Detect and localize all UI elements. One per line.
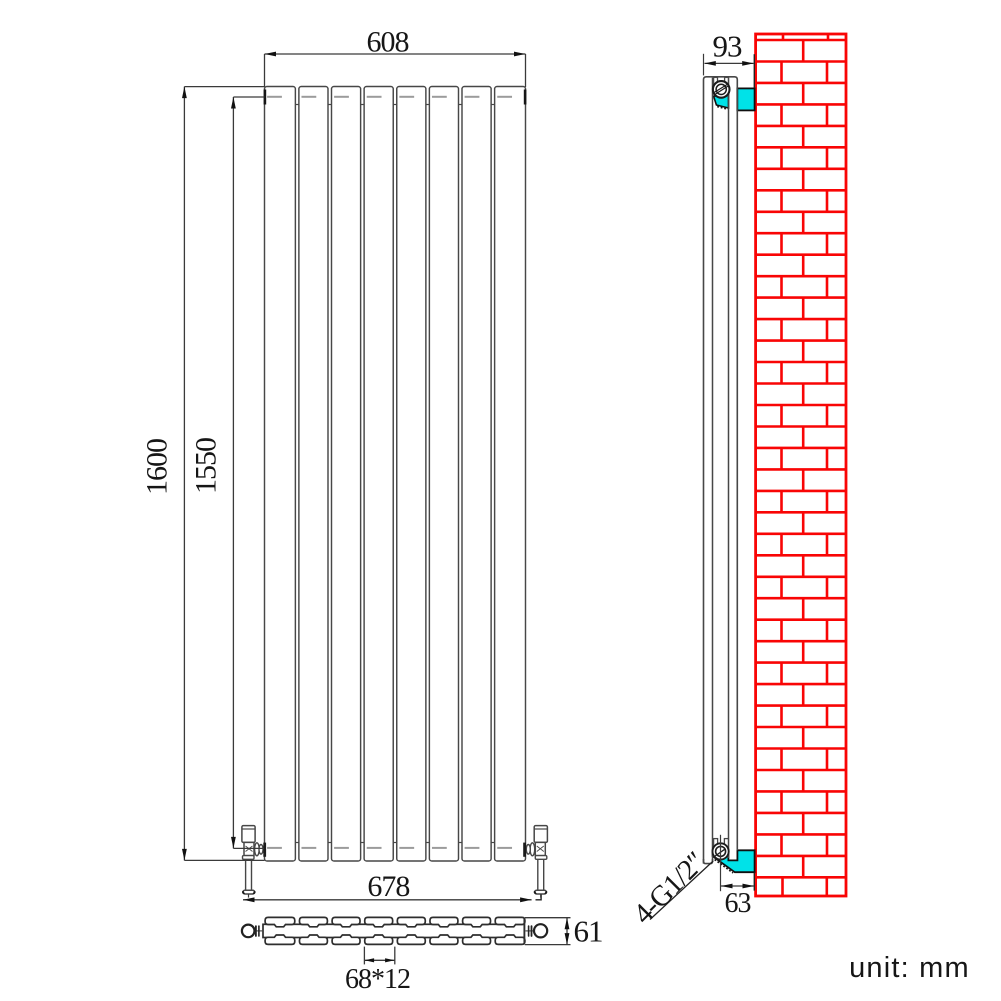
svg-text:61: 61 xyxy=(574,913,603,948)
svg-text:63: 63 xyxy=(725,888,751,919)
svg-text:1550: 1550 xyxy=(190,438,223,494)
svg-text:unit: mm: unit: mm xyxy=(849,952,970,984)
svg-text:608: 608 xyxy=(367,26,409,59)
svg-text:678: 678 xyxy=(367,870,409,903)
svg-text:68*12: 68*12 xyxy=(345,964,410,995)
svg-text:93: 93 xyxy=(713,29,743,64)
svg-text:1600: 1600 xyxy=(141,439,174,495)
